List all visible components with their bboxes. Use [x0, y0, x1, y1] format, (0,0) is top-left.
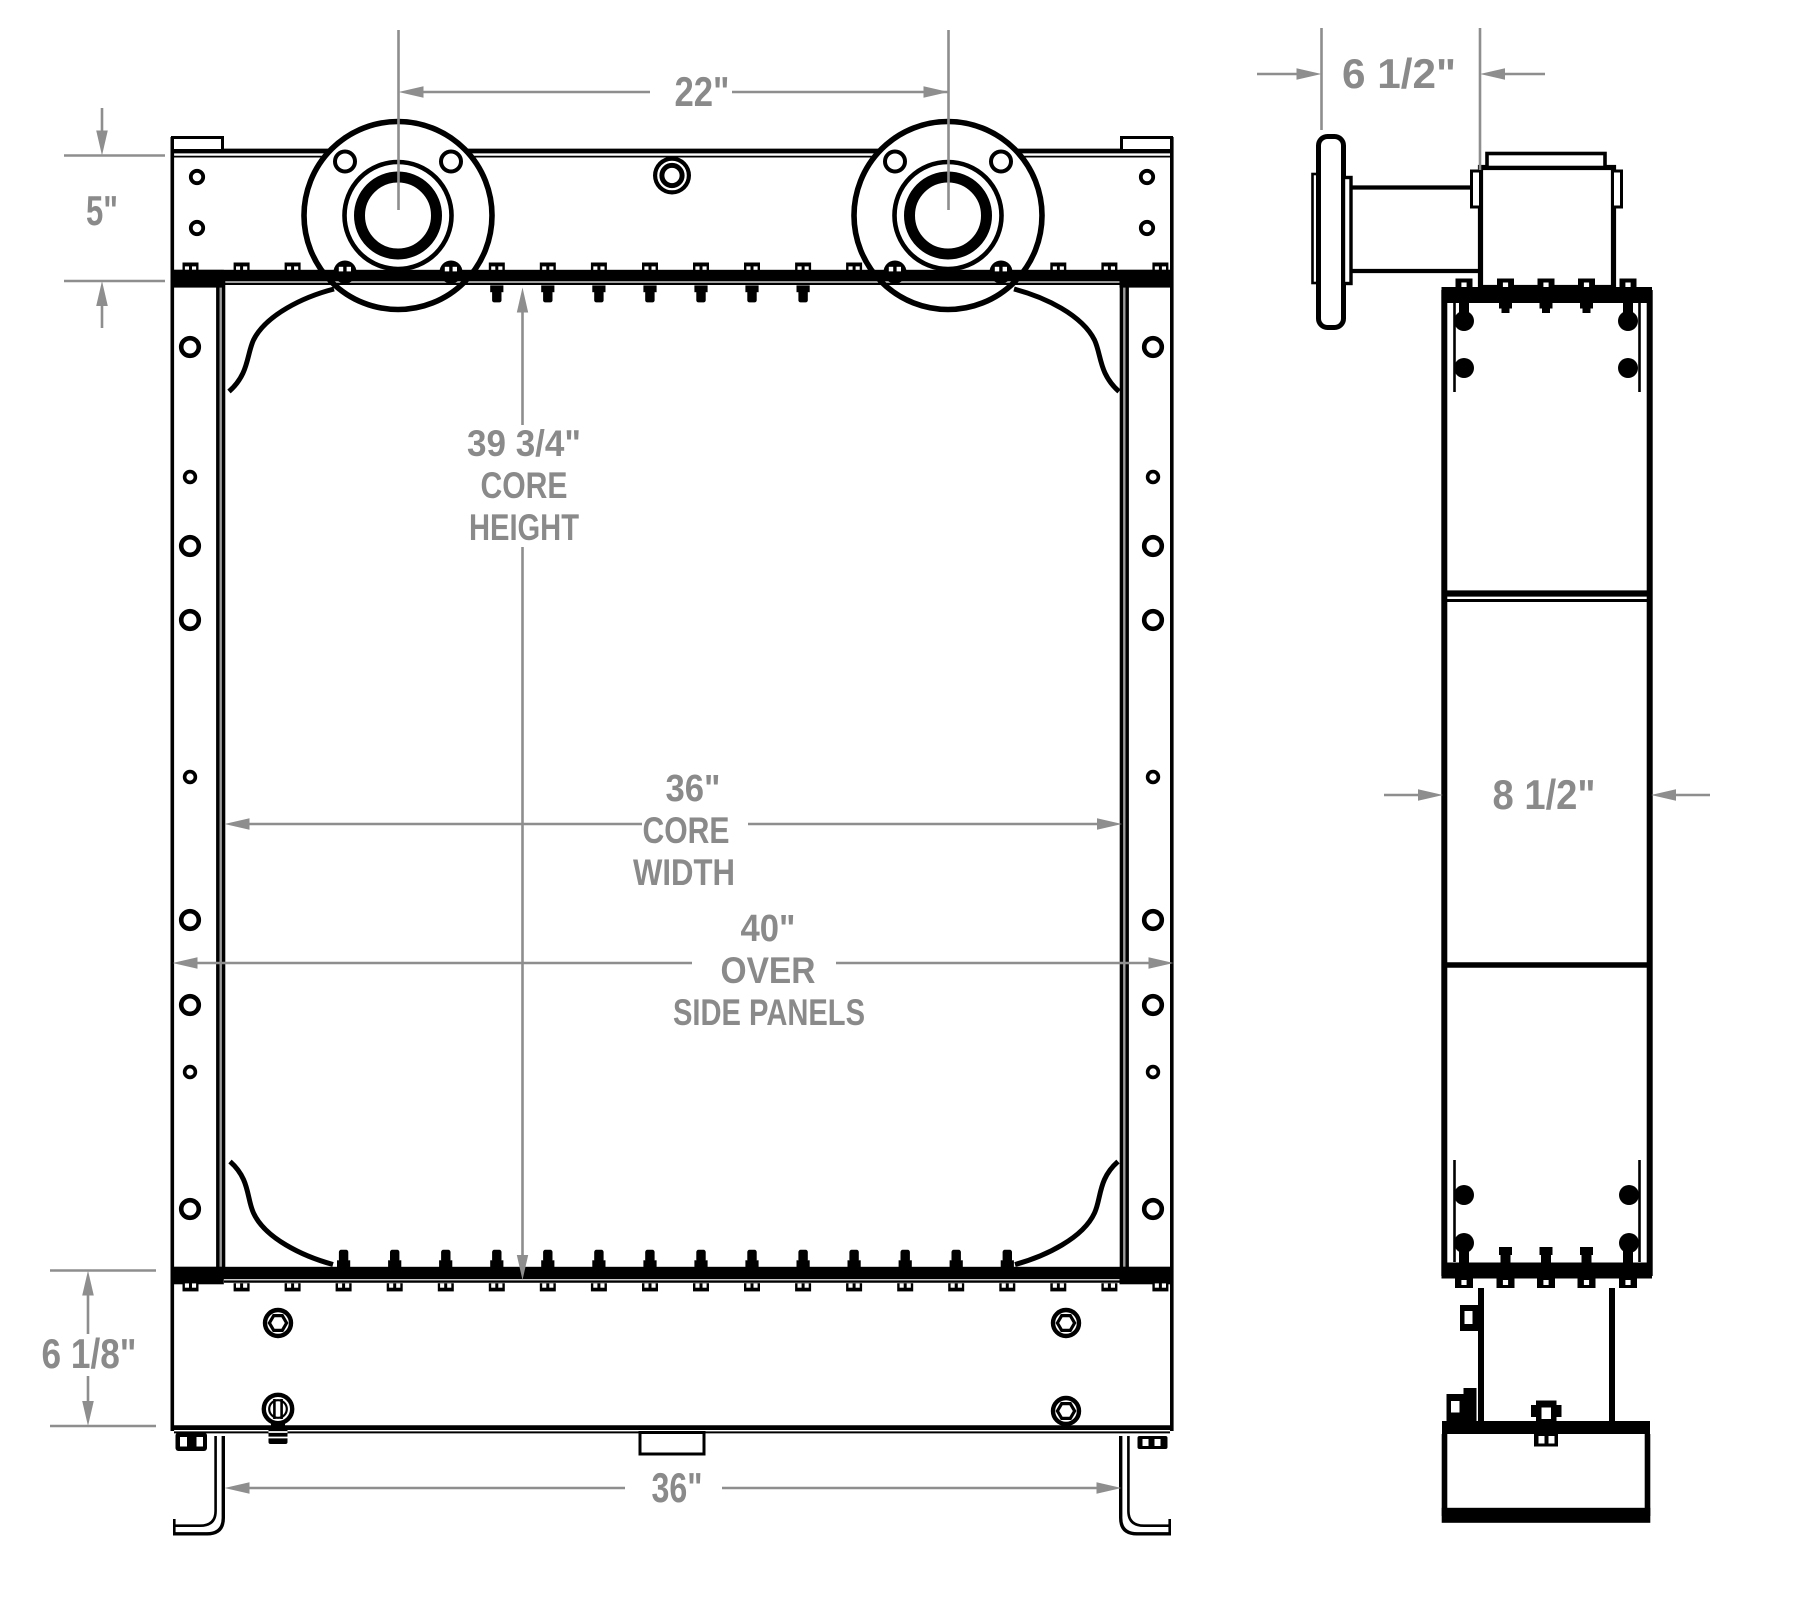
svg-text:39 3/4": 39 3/4" — [467, 423, 581, 464]
svg-text:WIDTH: WIDTH — [633, 852, 735, 893]
svg-text:36": 36" — [652, 1464, 703, 1511]
svg-text:40": 40" — [741, 908, 796, 950]
svg-text:OVER: OVER — [721, 950, 816, 991]
svg-text:CORE: CORE — [481, 465, 568, 506]
svg-text:8 1/2": 8 1/2" — [1493, 771, 1596, 818]
svg-text:5": 5" — [86, 187, 118, 234]
svg-text:SIDE PANELS: SIDE PANELS — [673, 992, 865, 1033]
svg-text:CORE: CORE — [643, 810, 730, 851]
svg-text:6 1/8": 6 1/8" — [42, 1330, 137, 1377]
svg-text:HEIGHT: HEIGHT — [469, 507, 579, 548]
svg-text:22": 22" — [675, 68, 730, 115]
svg-text:36": 36" — [666, 768, 721, 810]
svg-text:6 1/2": 6 1/2" — [1342, 50, 1456, 97]
